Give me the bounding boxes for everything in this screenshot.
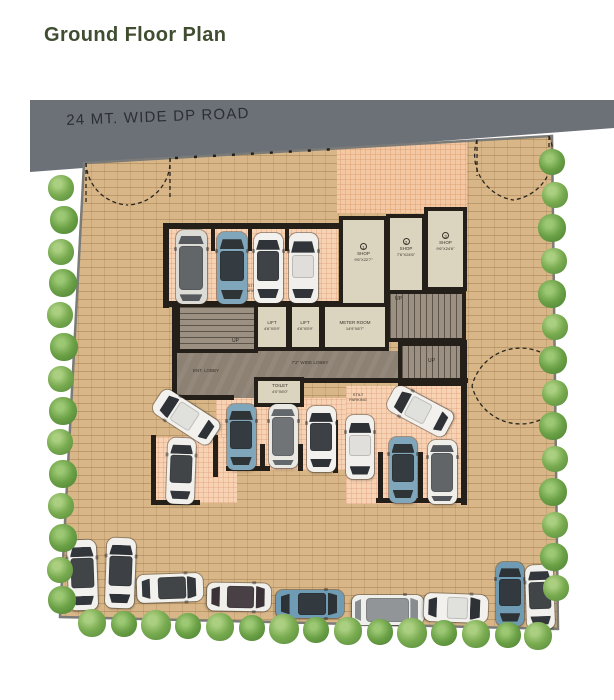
- tree-shrub: [542, 380, 568, 406]
- tree-shrub: [303, 617, 329, 643]
- tree-shrub: [47, 557, 73, 583]
- tree-shrub: [397, 618, 427, 648]
- tree-shrub: [206, 613, 234, 641]
- tree-shrub: [334, 617, 362, 645]
- tree-shrub: [47, 302, 73, 328]
- tree-shrub: [78, 609, 106, 637]
- tree-shrub: [49, 397, 77, 425]
- tree-shrub: [462, 620, 490, 648]
- tree-shrub: [48, 175, 74, 201]
- tree-shrub: [48, 493, 74, 519]
- tree-shrub: [524, 622, 552, 650]
- tree-shrub: [47, 429, 73, 455]
- tree-shrub: [542, 446, 568, 472]
- tree-shrub: [49, 269, 77, 297]
- tree-shrub: [50, 333, 78, 361]
- tree-shrub: [239, 615, 265, 641]
- tree-shrub: [543, 575, 569, 601]
- tree-shrub: [539, 346, 567, 374]
- tree-shrub: [539, 478, 567, 506]
- tree-shrub: [540, 543, 568, 571]
- tree-shrub: [50, 206, 78, 234]
- tree-shrub: [141, 610, 171, 640]
- tree-shrub: [542, 314, 568, 340]
- tree-shrub: [111, 611, 137, 637]
- tree-shrub: [542, 512, 568, 538]
- tree-shrub: [367, 619, 393, 645]
- tree-shrub: [49, 460, 77, 488]
- tree-shrub: [542, 182, 568, 208]
- tree-shrub: [269, 614, 299, 644]
- tree-shrub: [541, 248, 567, 274]
- tree-shrub: [538, 214, 566, 242]
- tree-shrub: [49, 524, 77, 552]
- tree-shrub: [431, 620, 457, 646]
- tree-shrub: [175, 613, 201, 639]
- floor-plan-page: Ground Floor Plan 24 MT. WIDE DP ROAD: [0, 0, 614, 700]
- tree-shrub: [48, 239, 74, 265]
- trees-layer: [0, 0, 614, 700]
- tree-shrub: [539, 412, 567, 440]
- tree-shrub: [538, 280, 566, 308]
- tree-shrub: [48, 586, 76, 614]
- tree-shrub: [48, 366, 74, 392]
- tree-shrub: [495, 622, 521, 648]
- tree-shrub: [539, 149, 565, 175]
